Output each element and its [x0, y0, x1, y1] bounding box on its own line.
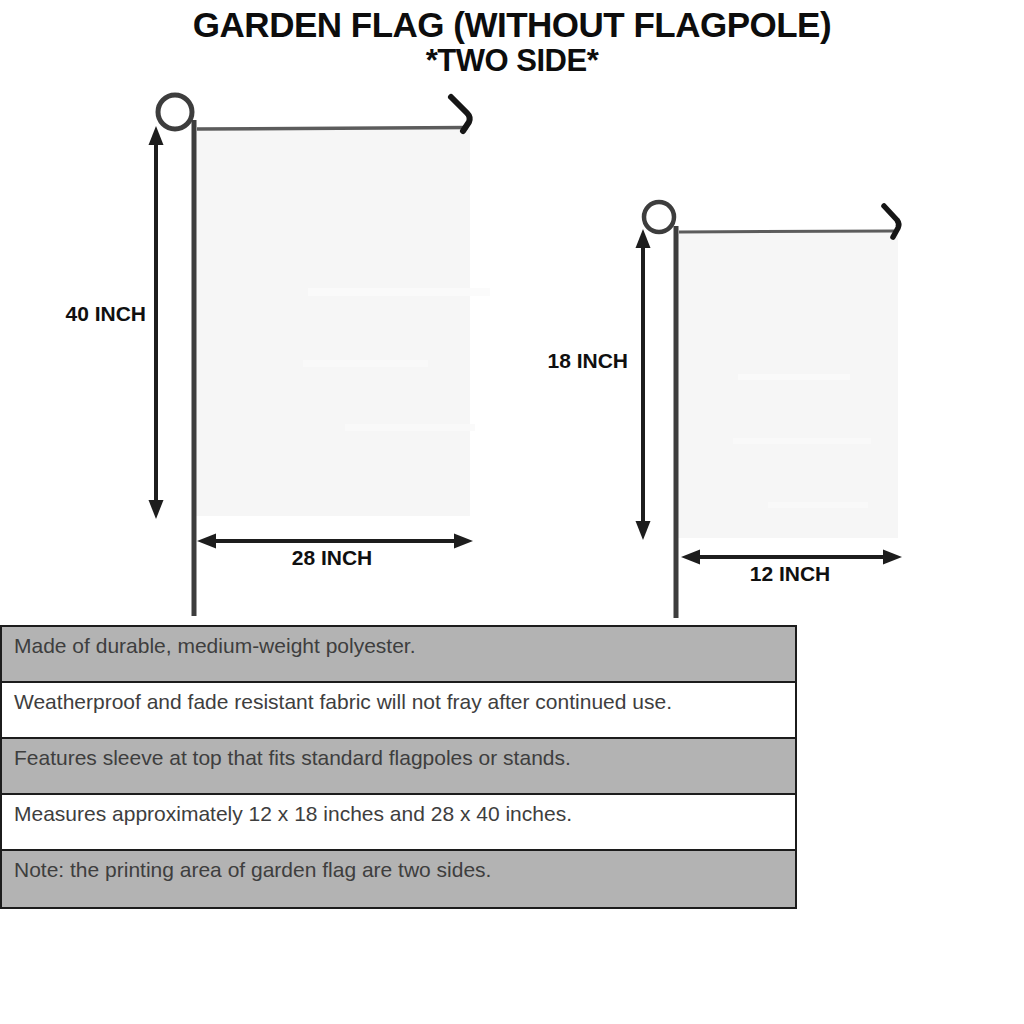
- table-row: Made of durable, medium-weight polyester…: [2, 627, 795, 683]
- flag-top-rod: [679, 231, 894, 232]
- arrowhead-up-icon: [149, 126, 164, 145]
- fabric-highlight: [738, 374, 850, 380]
- arrowhead-right-icon: [883, 550, 902, 565]
- flagpole-loop-icon: [158, 95, 192, 129]
- flag-top-rod: [197, 128, 468, 130]
- small-flag-fabric: [678, 231, 898, 538]
- table-row: Measures approximately 12 x 18 inches an…: [2, 795, 795, 851]
- large-flag-group: [149, 95, 491, 616]
- flagpole-loop-icon: [644, 202, 674, 232]
- arrowhead-down-icon: [149, 500, 164, 519]
- table-row: Weatherproof and fade resistant fabric w…: [2, 683, 795, 739]
- large-flag-height-label: 40 INCH: [36, 302, 146, 326]
- arrowhead-left-icon: [197, 534, 216, 549]
- garden-flag-spec-image: GARDEN FLAG (WITHOUT FLAGPOLE) *TWO SIDE…: [0, 0, 1024, 1024]
- large-flag-fabric: [196, 128, 470, 516]
- small-flag-height-label: 18 INCH: [516, 349, 628, 373]
- measure-arrow-40inch: [149, 126, 164, 519]
- table-row: Features sleeve at top that fits standar…: [2, 739, 795, 795]
- fabric-highlight: [303, 360, 428, 367]
- arrowhead-right-icon: [454, 534, 473, 549]
- measure-arrow-18inch: [636, 229, 651, 540]
- small-flag-group: [636, 202, 903, 618]
- table-row: Note: the printing area of garden flag a…: [2, 851, 795, 907]
- arrowhead-up-icon: [636, 229, 651, 248]
- fabric-highlight: [308, 288, 490, 296]
- spec-table: Made of durable, medium-weight polyester…: [0, 625, 797, 909]
- large-flag-width-label: 28 INCH: [252, 546, 412, 570]
- fabric-highlight: [733, 438, 871, 444]
- fabric-highlight: [768, 502, 868, 508]
- small-flag-width-label: 12 INCH: [710, 562, 870, 586]
- fabric-highlight: [345, 424, 475, 431]
- arrowhead-down-icon: [636, 521, 651, 540]
- arrowhead-left-icon: [681, 550, 700, 565]
